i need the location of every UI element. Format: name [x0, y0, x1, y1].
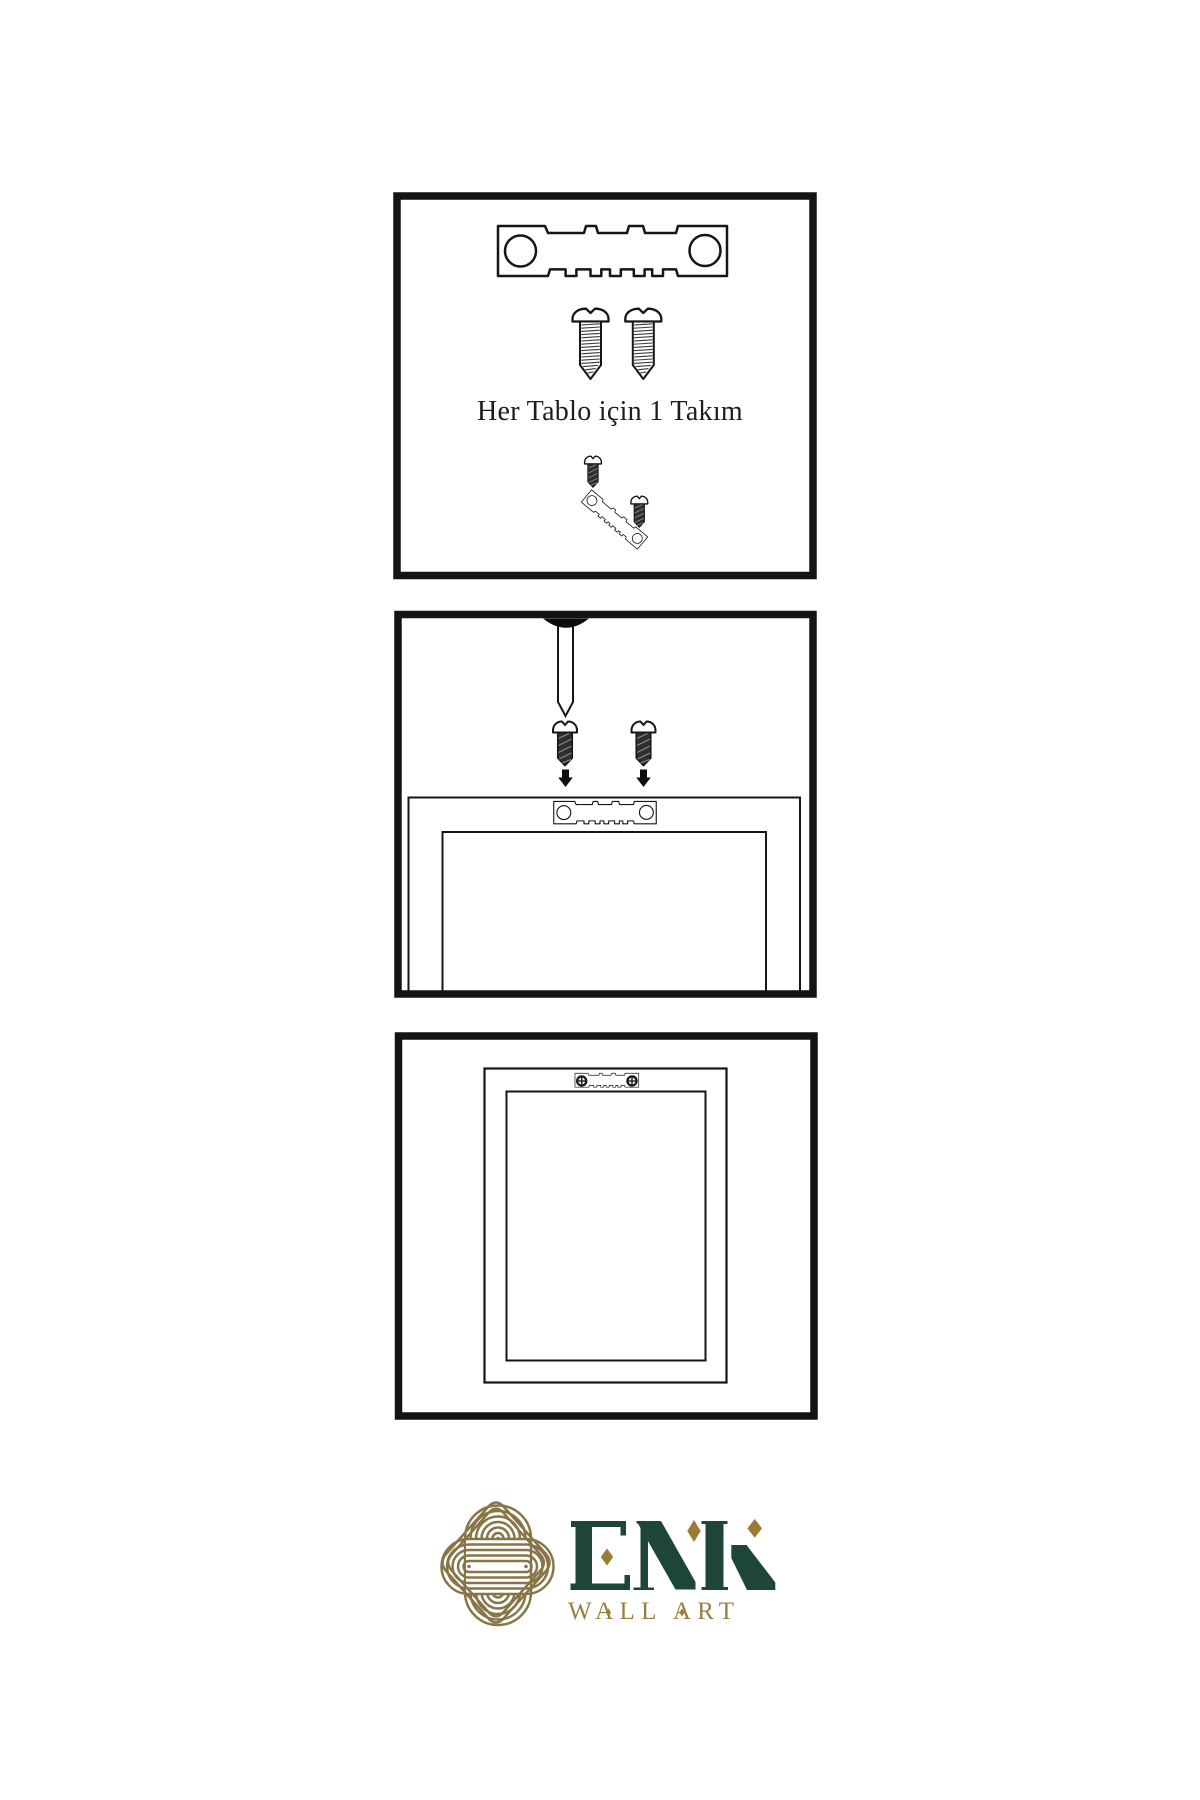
- svg-text:WALL ART: WALL ART: [568, 1598, 738, 1625]
- svg-text:Her Tablo için 1 Takım: Her Tablo için 1 Takım: [477, 396, 743, 427]
